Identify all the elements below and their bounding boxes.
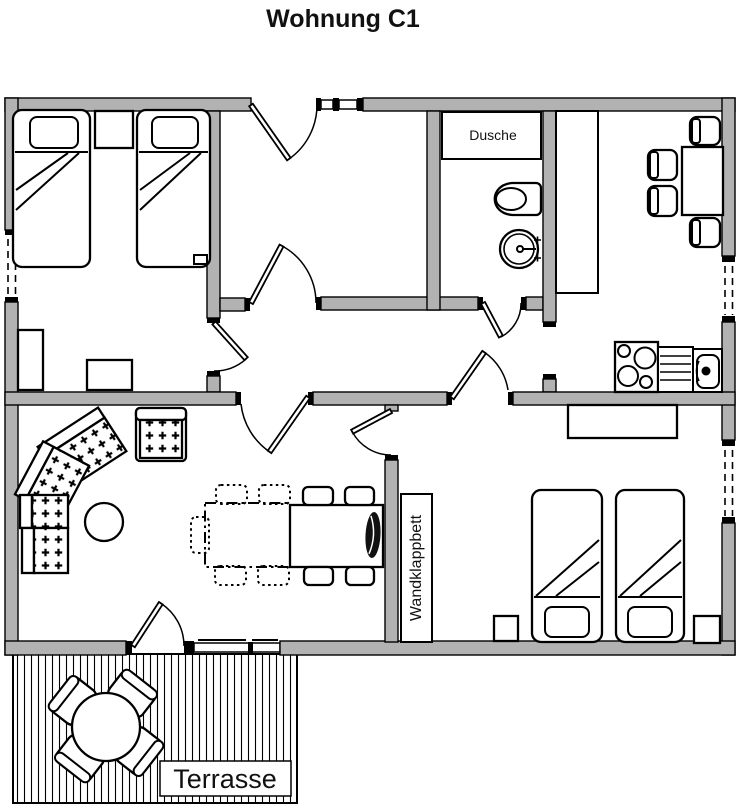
stove-icon	[615, 342, 658, 392]
dining-chair	[346, 567, 374, 585]
coffee-table	[85, 503, 123, 541]
dresser	[87, 360, 132, 390]
terrace: Terrasse	[13, 654, 297, 803]
entry-sidelight-pane	[339, 100, 357, 109]
terrace-round-table	[72, 693, 140, 761]
kitchen-chair	[648, 150, 677, 180]
kitchen-chair	[690, 218, 720, 247]
entry-sidelight-pane	[321, 100, 333, 109]
wall-bed-label: Wandklappbett	[408, 514, 425, 621]
kitchen-sink-icon	[693, 349, 722, 392]
pillow	[30, 117, 78, 148]
terrace-label: Terrasse	[173, 764, 277, 794]
entry-door	[249, 104, 317, 161]
dining-chair	[304, 567, 333, 585]
kitchen	[556, 111, 723, 392]
kitchen-chair	[648, 186, 677, 216]
dotted-chair	[216, 485, 247, 504]
armchair	[136, 408, 186, 461]
window	[725, 450, 733, 516]
single-bed	[13, 110, 90, 267]
pillow	[545, 607, 589, 637]
kitchen-counter	[556, 111, 598, 293]
bedroom-top	[13, 110, 210, 390]
hallway-door	[249, 245, 316, 304]
wardrobe	[18, 330, 43, 390]
pillow	[628, 607, 672, 637]
living-bedroom-door	[351, 409, 392, 455]
table-extension	[205, 503, 290, 567]
terrace-window	[194, 643, 280, 652]
shower-label: Dusche	[469, 127, 517, 143]
dining-chair	[303, 487, 333, 505]
sofa-section	[22, 528, 68, 573]
bathroom: Dusche	[442, 112, 541, 268]
drainboard-icon	[658, 347, 693, 392]
single-bed	[532, 490, 602, 642]
bedroom-bottom: Wandklappbett	[401, 405, 720, 643]
dotted-chair	[258, 566, 289, 585]
toilet-icon	[495, 183, 541, 215]
nightstand	[494, 616, 518, 641]
window	[725, 266, 733, 315]
kitchen-table	[682, 147, 723, 215]
page-title: Wohnung C1	[266, 5, 420, 33]
washbasin-icon	[500, 230, 541, 268]
dotted-chair	[191, 517, 209, 553]
bathroom-door	[481, 302, 521, 338]
dining-chair	[345, 487, 374, 505]
terrace-door	[131, 602, 184, 647]
bedroom-bottom-door	[450, 351, 508, 399]
floor-plan-page: Wohnung C1 Terrasse	[0, 0, 739, 805]
dotted-chair	[215, 566, 246, 585]
living-room-door	[241, 396, 310, 453]
nightstand	[694, 616, 720, 643]
terrace-door-frame	[184, 641, 194, 655]
dotted-chair	[259, 485, 290, 504]
wall-shelf	[194, 255, 207, 264]
bedroom-top-door	[212, 322, 247, 371]
single-bed	[616, 490, 684, 642]
nightstand	[95, 111, 133, 148]
kitchen-chair	[690, 117, 720, 145]
single-bed	[137, 110, 210, 267]
living-room	[15, 408, 383, 585]
sofa-section	[20, 495, 68, 528]
pillow	[152, 117, 198, 148]
dresser	[568, 405, 677, 438]
floor-plan-canvas: Wohnung C1 Terrasse	[0, 0, 739, 805]
